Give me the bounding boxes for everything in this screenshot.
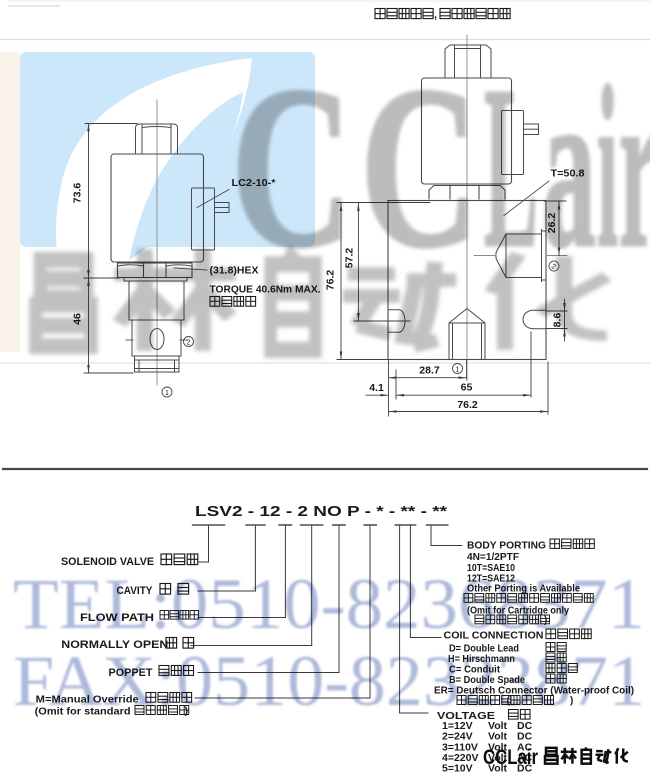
- svg-text:2: 2: [187, 339, 191, 346]
- svg-text:,: ,: [434, 9, 437, 21]
- svg-text:TEL:0510-82368371: TEL:0510-82368371: [13, 564, 645, 644]
- svg-text:BODY PORTING: BODY PORTING: [467, 540, 546, 552]
- svg-text:FAX:0510-82323871: FAX:0510-82323871: [13, 641, 645, 721]
- svg-text:73.6: 73.6: [72, 183, 84, 204]
- svg-text:28.7: 28.7: [419, 365, 440, 377]
- svg-text:1: 1: [165, 390, 169, 397]
- svg-text:i: i: [597, 39, 618, 296]
- svg-text:65: 65: [461, 382, 473, 394]
- svg-text:LSV2 - 12 - 2 NO P - * - ** -: LSV2 - 12 - 2 NO P - * - ** - **: [195, 503, 447, 520]
- svg-text:1: 1: [456, 366, 460, 373]
- svg-text:76.2: 76.2: [457, 399, 478, 411]
- svg-text:r: r: [619, 39, 650, 296]
- svg-text:4.1: 4.1: [369, 382, 384, 394]
- svg-text:C: C: [360, 39, 479, 296]
- svg-text:CCLair: CCLair: [483, 746, 538, 769]
- svg-text:5=10V: 5=10V: [442, 763, 473, 775]
